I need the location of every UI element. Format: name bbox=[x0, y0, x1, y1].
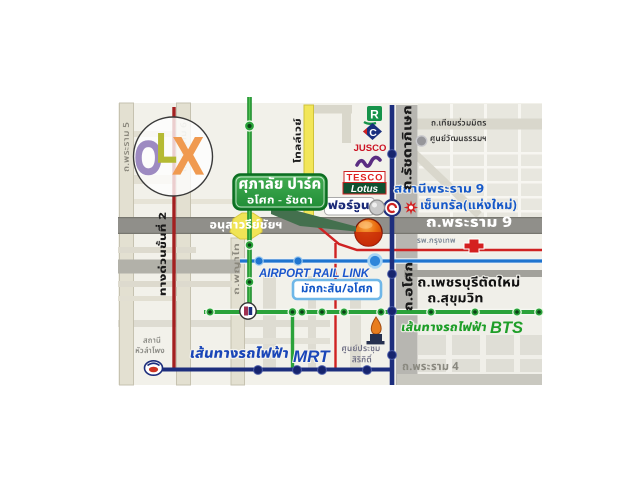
svg-text:BTS: BTS bbox=[490, 319, 523, 337]
svg-text:JUSCO: JUSCO bbox=[354, 143, 387, 154]
svg-text:TESCO: TESCO bbox=[347, 173, 383, 184]
svg-text:R: R bbox=[370, 108, 379, 122]
svg-text:AIRPORT RAIL LINK: AIRPORT RAIL LINK bbox=[258, 268, 370, 280]
svg-text:MRT: MRT bbox=[293, 347, 331, 366]
svg-text:Lotus: Lotus bbox=[351, 184, 379, 195]
svg-text:X: X bbox=[173, 126, 204, 186]
svg-text:C: C bbox=[369, 127, 377, 139]
